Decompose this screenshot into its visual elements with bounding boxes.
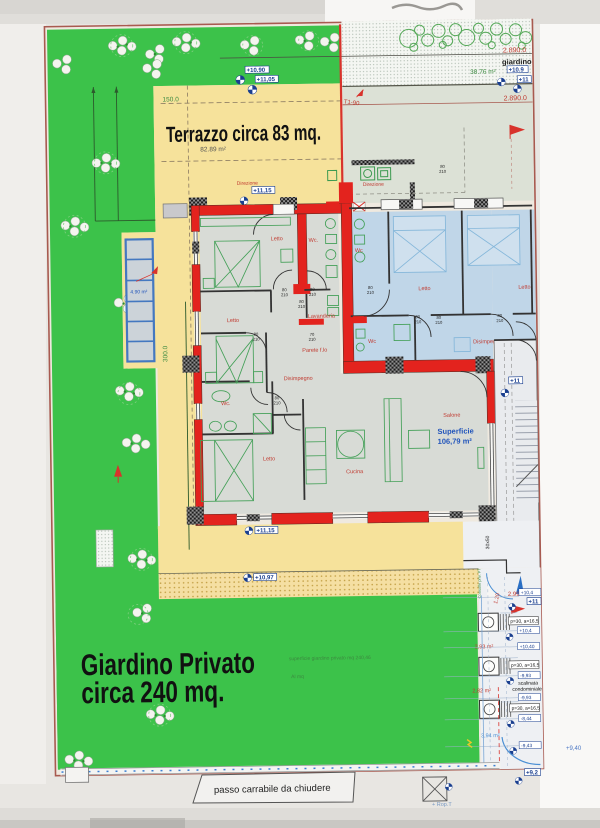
svg-text:Letto: Letto <box>518 285 530 291</box>
svg-text:+11: +11 <box>519 77 530 83</box>
svg-text:210: 210 <box>281 292 289 297</box>
svg-text:Superficie: Superficie <box>437 426 473 436</box>
svg-text:210: 210 <box>253 337 261 342</box>
svg-text:Terrazzo circa 83 mq.: Terrazzo circa 83 mq. <box>166 120 321 147</box>
svg-text:+9,40: +9,40 <box>566 746 582 752</box>
svg-text:+10.90: +10.90 <box>247 68 266 74</box>
svg-text:2.890.0: 2.890.0 <box>504 95 528 102</box>
svg-text:+9,2: +9,2 <box>526 770 539 776</box>
svg-text:+11,15: +11,15 <box>253 188 272 194</box>
svg-text:superficie giardino privato mq: superficie giardino privato mq 240,46 <box>289 655 371 662</box>
svg-text:Lavanderia: Lavanderia <box>308 313 336 319</box>
svg-text:Direzione: Direzione <box>237 181 258 187</box>
svg-text:2.890.0: 2.890.0 <box>503 47 527 54</box>
svg-text:+11,15: +11,15 <box>256 528 275 534</box>
svg-text:circa 240 mq.: circa 240 mq. <box>81 675 224 710</box>
svg-text:condominiale: condominiale <box>512 686 542 692</box>
svg-text:30x50: 30x50 <box>485 535 491 549</box>
svg-text:+11,05: +11,05 <box>257 77 276 83</box>
svg-text:+10,4: +10,4 <box>519 628 532 634</box>
svg-text:Direzione: Direzione <box>363 182 384 188</box>
svg-text:210: 210 <box>414 319 422 324</box>
svg-text:Cucina: Cucina <box>346 469 364 475</box>
svg-text:+11: +11 <box>510 379 521 385</box>
svg-text:Salone: Salone <box>443 413 460 419</box>
svg-text:Letto: Letto <box>418 286 430 292</box>
svg-text:p=30, a=16,5: p=30, a=16,5 <box>511 662 540 668</box>
svg-text:150.0: 150.0 <box>162 96 179 103</box>
svg-text:+10,97: +10,97 <box>255 575 274 581</box>
svg-text:Disimpegno: Disimpegno <box>284 376 313 382</box>
svg-text:Wc: Wc <box>355 248 363 254</box>
svg-text:-9,43: -9,43 <box>521 743 532 749</box>
svg-text:210: 210 <box>309 337 317 342</box>
svg-text:210: 210 <box>309 292 317 297</box>
svg-text:p=30, a=16,5: p=30, a=16,5 <box>512 705 541 711</box>
svg-text:Wc.: Wc. <box>309 238 319 244</box>
svg-text:38.76 m²: 38.76 m² <box>470 69 497 76</box>
svg-text:2,82 m²: 2,82 m² <box>472 688 491 694</box>
svg-text:Al mq: Al mq <box>291 674 304 680</box>
svg-text:+10,4: +10,4 <box>521 590 534 596</box>
svg-text:Consolle priv. PT: Consolle priv. PT <box>477 568 482 599</box>
svg-text:p=30, a=16,5: p=30, a=16,5 <box>510 618 539 624</box>
svg-text:Wc: Wc <box>368 339 376 345</box>
svg-text:Letto: Letto <box>271 236 283 242</box>
svg-text:giardino: giardino <box>502 57 532 66</box>
svg-text:82.89 m²: 82.89 m² <box>200 146 227 153</box>
svg-text:passo carrabile da chiudere: passo carrabile da chiudere <box>214 783 331 796</box>
svg-text:Letto: Letto <box>227 318 239 324</box>
svg-text:210: 210 <box>274 400 282 405</box>
svg-text:Wc.: Wc. <box>221 401 231 407</box>
svg-text:+10.9: +10.9 <box>509 67 525 73</box>
svg-text:+ Rop.T: + Rop.T <box>432 802 452 808</box>
svg-text:Parete f.lo: Parete f.lo <box>302 348 327 354</box>
svg-text:-8,44: -8,44 <box>521 716 532 722</box>
svg-text:210: 210 <box>298 304 306 309</box>
svg-text:-9,93: -9,93 <box>520 673 531 679</box>
svg-text:+10,40: +10,40 <box>520 644 535 650</box>
svg-text:210: 210 <box>435 320 443 325</box>
svg-text:210: 210 <box>367 290 375 295</box>
svg-text:-9,93: -9,93 <box>520 695 531 701</box>
svg-text:106,79 m²: 106,79 m² <box>438 436 473 446</box>
svg-text:300.0: 300.0 <box>162 345 169 362</box>
svg-text:4.90 m²: 4.90 m² <box>130 289 147 295</box>
svg-text:210: 210 <box>439 169 447 174</box>
svg-text:Letto: Letto <box>263 456 275 462</box>
svg-text:+11: +11 <box>528 599 539 605</box>
svg-text:210: 210 <box>496 318 504 323</box>
